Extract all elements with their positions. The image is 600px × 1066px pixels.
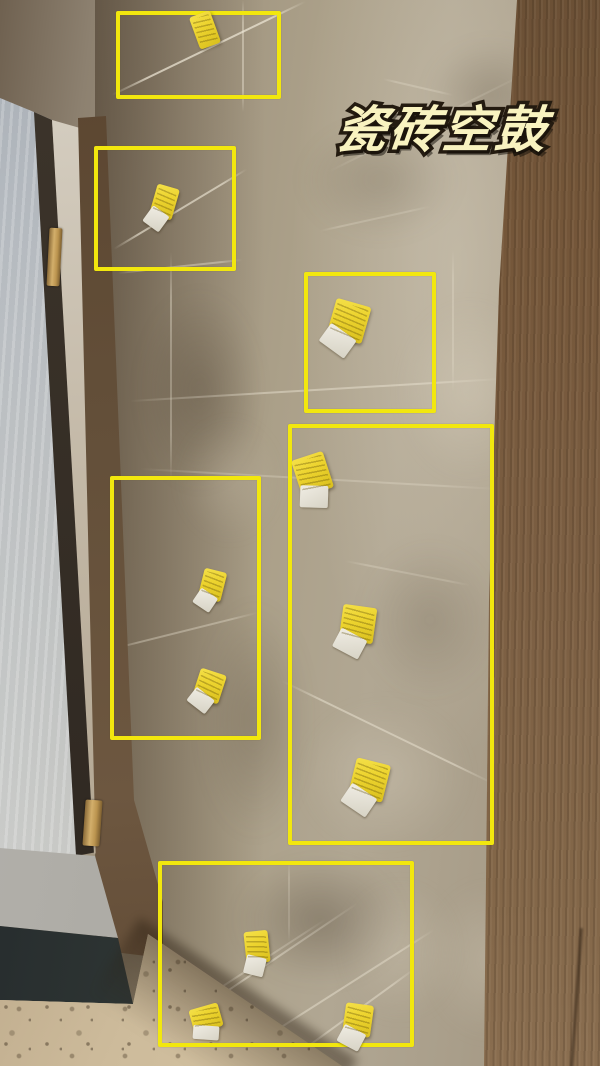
sticker-backing-paper bbox=[300, 485, 329, 508]
title-text: 瓷砖空鼓 bbox=[333, 90, 553, 162]
defect-box-5 bbox=[110, 476, 261, 740]
inspection-photo: 瓷砖空鼓 bbox=[0, 0, 600, 1066]
defect-sticker-5 bbox=[339, 604, 378, 644]
sticker-backing-paper bbox=[192, 1025, 218, 1041]
defect-sticker-11 bbox=[342, 1002, 374, 1038]
defect-sticker-9 bbox=[243, 930, 270, 964]
